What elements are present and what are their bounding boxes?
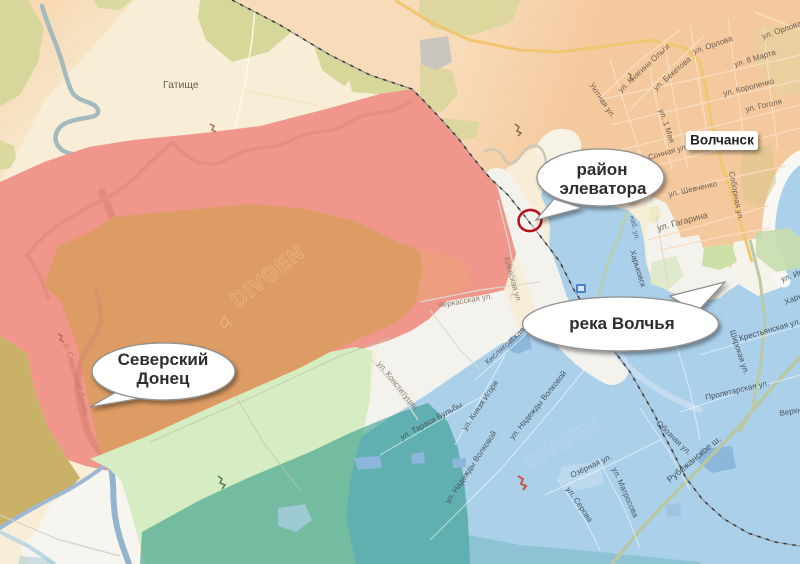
svg-text:Гатище: Гатище <box>163 79 199 91</box>
svg-text:река Волчья: река Волчья <box>569 314 674 333</box>
svg-text:Донец: Донец <box>137 369 190 388</box>
svg-text:район: район <box>577 160 628 179</box>
svg-text:элеватора: элеватора <box>559 179 647 198</box>
svg-text:Волчанск: Волчанск <box>690 133 754 148</box>
svg-text:Северский: Северский <box>118 350 209 369</box>
